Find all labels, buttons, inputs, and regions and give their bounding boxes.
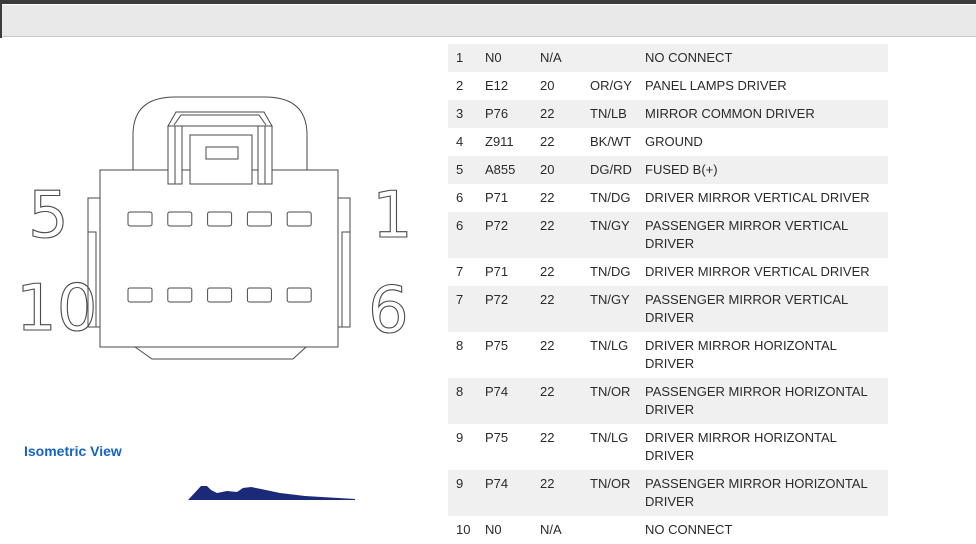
- pin-cell: 2: [456, 77, 485, 95]
- wire-color-cell: DG/RD: [590, 161, 645, 179]
- gauge-cell: 22: [540, 429, 590, 447]
- function-cell: PANEL LAMPS DRIVER: [645, 77, 888, 95]
- circuit-cell: P74: [485, 475, 540, 493]
- table-row: 6 P71 22 TN/DG DRIVER MIRROR VERTICAL DR…: [448, 184, 888, 212]
- pin-cell: 8: [456, 337, 485, 355]
- gauge-cell: 22: [540, 291, 590, 309]
- function-cell: PASSENGER MIRROR HORIZONTAL DRIVER: [645, 383, 888, 419]
- pin-cell: 3: [456, 105, 485, 123]
- connector-drawing-svg: 5 10 1 6: [0, 80, 430, 380]
- table-row: 9 P75 22 TN/LG DRIVER MIRROR HORIZONTAL …: [448, 424, 888, 470]
- gauge-cell: 22: [540, 383, 590, 401]
- function-cell: DRIVER MIRROR HORIZONTAL DRIVER: [645, 337, 888, 373]
- pin-slot: [247, 288, 271, 302]
- wire-color-cell: OR/GY: [590, 77, 645, 95]
- pin-cell: 9: [456, 429, 485, 447]
- circuit-cell: P72: [485, 217, 540, 235]
- connector-housing: [100, 170, 338, 347]
- lock-bar: [168, 112, 272, 126]
- toolbar: [0, 5, 976, 37]
- table-row: 8 P75 22 TN/LG DRIVER MIRROR HORIZONTAL …: [448, 332, 888, 378]
- gauge-cell: 22: [540, 263, 590, 281]
- pin-cell: 1: [456, 49, 485, 67]
- pin-cell: 5: [456, 161, 485, 179]
- function-cell: DRIVER MIRROR VERTICAL DRIVER: [645, 263, 888, 281]
- circuit-cell: A855: [485, 161, 540, 179]
- function-cell: PASSENGER MIRROR VERTICAL DRIVER: [645, 291, 888, 327]
- gauge-cell: 22: [540, 217, 590, 235]
- gauge-cell: 22: [540, 337, 590, 355]
- table-row: 2 E12 20 OR/GY PANEL LAMPS DRIVER: [448, 72, 888, 100]
- pin-cell: 6: [456, 189, 485, 207]
- pin-cell: 7: [456, 263, 485, 281]
- circuit-cell: E12: [485, 77, 540, 95]
- function-cell: PASSENGER MIRROR VERTICAL DRIVER: [645, 217, 888, 253]
- pin-slot: [168, 288, 192, 302]
- table-row: 1 N0 N/A NO CONNECT: [448, 44, 888, 72]
- function-cell: DRIVER MIRROR HORIZONTAL DRIVER: [645, 429, 888, 465]
- window-top-border: [0, 0, 976, 4]
- isometric-thumbnail: [185, 477, 365, 500]
- isometric-view-link[interactable]: Isometric View: [24, 443, 122, 459]
- wire-color-cell: TN/DG: [590, 263, 645, 281]
- pin-label-top-right: 1: [372, 179, 413, 253]
- connector-face-diagram: 5 10 1 6: [0, 80, 430, 380]
- table-row: 4 Z911 22 BK/WT GROUND: [448, 128, 888, 156]
- wire-color-cell: TN/GY: [590, 217, 645, 235]
- gauge-cell: 22: [540, 189, 590, 207]
- wire-color-cell: BK/WT: [590, 133, 645, 151]
- pin-cell: 7: [456, 291, 485, 309]
- table-row: 8 P74 22 TN/OR PASSENGER MIRROR HORIZONT…: [448, 378, 888, 424]
- circuit-cell: P71: [485, 189, 540, 207]
- pin-slot: [247, 212, 271, 226]
- pin-slot: [168, 212, 192, 226]
- pin-cell: 4: [456, 133, 485, 151]
- pin-slot: [287, 212, 311, 226]
- function-cell: PASSENGER MIRROR HORIZONTAL DRIVER: [645, 475, 888, 511]
- pin-label-bottom-right: 6: [368, 274, 409, 348]
- circuit-cell: P75: [485, 337, 540, 355]
- gauge-cell: N/A: [540, 521, 590, 539]
- pin-slot: [287, 288, 311, 302]
- pin-cell: 8: [456, 383, 485, 401]
- wire-color-cell: TN/LG: [590, 429, 645, 447]
- function-cell: MIRROR COMMON DRIVER: [645, 105, 888, 123]
- circuit-cell: P71: [485, 263, 540, 281]
- table-row: 9 P74 22 TN/OR PASSENGER MIRROR HORIZONT…: [448, 470, 888, 516]
- wire-color-cell: TN/LG: [590, 337, 645, 355]
- pin-slot: [208, 288, 232, 302]
- circuit-cell: P75: [485, 429, 540, 447]
- circuit-cell: N0: [485, 49, 540, 67]
- table-row: 5 A855 20 DG/RD FUSED B(+): [448, 156, 888, 184]
- connector-foot: [135, 347, 306, 359]
- wire-color-cell: TN/GY: [590, 291, 645, 309]
- pin-cell: 6: [456, 217, 485, 235]
- pin-slot: [128, 288, 152, 302]
- pin-cell: 9: [456, 475, 485, 493]
- pin-slot: [208, 212, 232, 226]
- pin-label-bottom-left: 10: [16, 272, 97, 346]
- gauge-cell: 20: [540, 77, 590, 95]
- table-row: 3 P76 22 TN/LB MIRROR COMMON DRIVER: [448, 100, 888, 128]
- latch-right: [338, 198, 350, 327]
- gauge-cell: 22: [540, 475, 590, 493]
- gauge-cell: N/A: [540, 49, 590, 67]
- table-row: 7 P72 22 TN/GY PASSENGER MIRROR VERTICAL…: [448, 286, 888, 332]
- latch-right-step: [342, 232, 350, 327]
- circuit-cell: P72: [485, 291, 540, 309]
- function-cell: GROUND: [645, 133, 888, 151]
- window-left-border: [0, 0, 2, 38]
- wire-color-cell: TN/OR: [590, 475, 645, 493]
- circuit-cell: P74: [485, 383, 540, 401]
- gauge-cell: 20: [540, 161, 590, 179]
- pinout-table: 1 N0 N/A NO CONNECT 2 E12 20 OR/GY PANEL…: [448, 44, 888, 544]
- gauge-cell: 22: [540, 133, 590, 151]
- table-row: 10 N0 N/A NO CONNECT: [448, 516, 888, 544]
- isometric-connector-shape: [188, 486, 355, 500]
- function-cell: DRIVER MIRROR VERTICAL DRIVER: [645, 189, 888, 207]
- wire-color-cell: TN/LB: [590, 105, 645, 123]
- table-row: 6 P72 22 TN/GY PASSENGER MIRROR VERTICAL…: [448, 212, 888, 258]
- wire-color-cell: TN/OR: [590, 383, 645, 401]
- gauge-cell: 22: [540, 105, 590, 123]
- function-cell: NO CONNECT: [645, 521, 888, 539]
- pin-label-top-left: 5: [28, 179, 69, 253]
- wire-color-cell: TN/DG: [590, 189, 645, 207]
- circuit-cell: N0: [485, 521, 540, 539]
- pin-slot: [128, 212, 152, 226]
- circuit-cell: Z911: [485, 133, 540, 151]
- function-cell: NO CONNECT: [645, 49, 888, 67]
- function-cell: FUSED B(+): [645, 161, 888, 179]
- table-row: 7 P71 22 TN/DG DRIVER MIRROR VERTICAL DR…: [448, 258, 888, 286]
- pin-cell: 10: [456, 521, 485, 539]
- circuit-cell: P76: [485, 105, 540, 123]
